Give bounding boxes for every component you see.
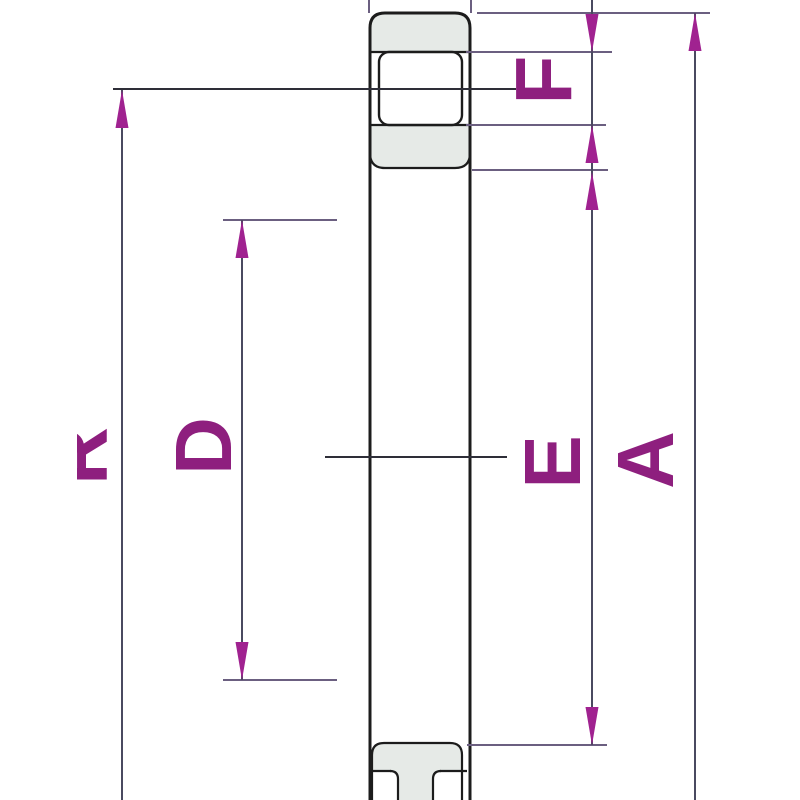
arrow-down-f-top — [586, 14, 599, 52]
arrow-down-e-bottom — [586, 707, 599, 745]
outer-ring-section — [370, 13, 470, 52]
bearing-section — [113, 13, 516, 800]
label-partial: R — [77, 427, 113, 485]
arrow-up-a — [689, 13, 702, 51]
arrow-up-e-top — [586, 172, 599, 210]
drawing-linework — [0, 0, 800, 800]
inner-ring-section — [370, 125, 470, 168]
label-a: A — [606, 431, 686, 489]
bearing-dimension-drawing: F D E A R — [0, 0, 800, 800]
arrow-up-f-bottom — [586, 125, 599, 163]
label-partial-clip: R — [77, 420, 113, 492]
label-d: D — [164, 417, 244, 475]
arrow-up-d — [236, 220, 249, 258]
label-f: F — [504, 56, 584, 105]
label-e: E — [513, 435, 593, 488]
arrow-down-d — [236, 642, 249, 680]
arrow-up-left-dim — [116, 90, 129, 128]
